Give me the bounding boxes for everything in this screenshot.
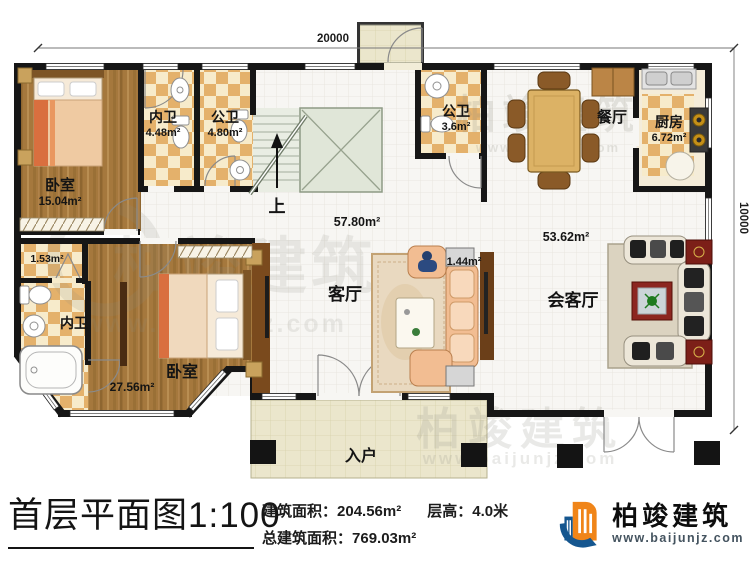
pillow bbox=[70, 82, 96, 96]
kitchen-table bbox=[666, 152, 694, 180]
column bbox=[461, 443, 487, 467]
dining-chair bbox=[582, 134, 599, 162]
side-table bbox=[686, 340, 712, 364]
floor-plan-sheet: 柏竣建筑 www.baijunjz.com 柏竣建筑 www.baijunjz.… bbox=[0, 0, 750, 567]
area-duct: 1.44m² bbox=[447, 256, 482, 268]
title-underline bbox=[8, 547, 254, 549]
area-bedroom-bottom: 27.56m² bbox=[110, 380, 155, 394]
column bbox=[694, 441, 720, 465]
sink bbox=[425, 74, 449, 98]
sink bbox=[171, 78, 189, 102]
label-entry-porch: 入户 bbox=[345, 446, 377, 465]
cushion bbox=[630, 240, 646, 258]
area-reception: 53.62m² bbox=[543, 230, 590, 244]
side-cabinet bbox=[446, 366, 474, 386]
building-area-value: 204.56m² bbox=[337, 503, 401, 520]
window bbox=[305, 64, 355, 70]
cushion bbox=[632, 342, 650, 360]
tv-icon bbox=[484, 272, 488, 334]
cushion bbox=[670, 240, 684, 258]
blanket-stripe bbox=[34, 100, 48, 166]
sofa-cushion bbox=[450, 334, 474, 362]
area-closet: 1.53m² bbox=[30, 253, 64, 265]
dining-chair bbox=[508, 134, 525, 162]
watermark-url: www.baijunjz.com bbox=[422, 449, 618, 468]
headboard bbox=[243, 270, 251, 360]
dresser bbox=[120, 282, 127, 366]
dimension-top: 20000 bbox=[317, 33, 349, 45]
nightstand bbox=[18, 68, 32, 83]
label-bedroom-top: 卧室 bbox=[45, 176, 75, 194]
blanket-stripe bbox=[50, 100, 55, 166]
dining-table bbox=[528, 90, 580, 172]
area-public-bath-mid: 3.6m² bbox=[442, 121, 471, 133]
side-table bbox=[686, 240, 712, 264]
headboard bbox=[32, 70, 104, 78]
bay-window bbox=[70, 411, 174, 417]
brand-logo-icon bbox=[558, 495, 604, 551]
page-title: 首层平面图1:100 bbox=[8, 487, 281, 538]
wardrobe bbox=[178, 246, 252, 258]
area-public-bath-top: 4.80m² bbox=[208, 127, 243, 139]
pillow bbox=[216, 318, 238, 350]
dimension-right: 10000 bbox=[737, 202, 749, 234]
sink-basin bbox=[646, 72, 667, 85]
sink bbox=[23, 315, 45, 337]
stats-row-2: 总建筑面积：769.03m² bbox=[262, 525, 508, 552]
dining-chair bbox=[538, 72, 570, 89]
label-living: 客厅 bbox=[327, 284, 362, 304]
window bbox=[408, 394, 450, 400]
cushion bbox=[650, 240, 666, 258]
toilet bbox=[29, 286, 51, 304]
person-body bbox=[418, 260, 437, 272]
label-public-bath-top: 公卫 bbox=[211, 109, 239, 125]
title-block: 首层平面图1:100 建筑面积：204.56m²层高：4.0米 总建筑面积：76… bbox=[0, 485, 750, 567]
dining-chair bbox=[538, 172, 570, 189]
tv-icon bbox=[265, 276, 269, 338]
blanket-stripe bbox=[159, 274, 169, 358]
reception-door-right bbox=[639, 417, 674, 452]
building-area-label: 建筑面积： bbox=[262, 503, 337, 520]
area-stats: 建筑面积：204.56m²层高：4.0米 总建筑面积：769.03m² bbox=[262, 498, 508, 552]
person bbox=[422, 251, 432, 261]
label-kitchen: 厨房 bbox=[655, 114, 683, 130]
nightstand bbox=[246, 362, 262, 377]
cushion bbox=[656, 342, 674, 360]
window bbox=[46, 64, 104, 70]
window bbox=[494, 64, 580, 70]
floor-height-value: 4.0米 bbox=[472, 503, 508, 520]
window bbox=[202, 64, 248, 70]
brand-name: 柏竣建筑 bbox=[612, 501, 744, 531]
back-porch-floor bbox=[359, 25, 423, 63]
back-door-opening bbox=[384, 63, 422, 70]
coffee-table bbox=[396, 298, 434, 348]
label-public-bath-mid: 公卫 bbox=[442, 103, 470, 119]
toilet-tank bbox=[20, 286, 29, 304]
label-reception: 会客厅 bbox=[548, 290, 599, 310]
sofa-cushion bbox=[450, 270, 474, 298]
brand-website: www.baijunjz.com bbox=[612, 531, 744, 546]
cushion bbox=[684, 292, 704, 312]
wardrobe bbox=[20, 218, 104, 231]
label-bedroom-bottom: 卧室 bbox=[166, 362, 198, 381]
area-living: 57.80m² bbox=[334, 215, 381, 229]
bathtub bbox=[20, 346, 82, 394]
sink-basin bbox=[671, 72, 692, 85]
sink bbox=[230, 160, 250, 180]
column bbox=[250, 440, 276, 464]
cushion bbox=[684, 316, 704, 336]
area-kitchen: 6.72m² bbox=[652, 132, 687, 144]
total-area-value: 769.03m² bbox=[352, 530, 416, 547]
label-dining: 餐厅 bbox=[597, 108, 627, 126]
reception-sofa-set bbox=[608, 236, 712, 368]
cushion bbox=[684, 268, 704, 288]
total-area-label: 总建筑面积： bbox=[262, 530, 352, 547]
brand-block: 柏竣建筑 www.baijunjz.com bbox=[558, 495, 744, 551]
toilet-tank bbox=[421, 116, 430, 132]
label-ensuite-bottom: 内卫 bbox=[60, 315, 88, 331]
window bbox=[143, 64, 178, 70]
area-bedroom-top: 15.04m² bbox=[39, 196, 82, 208]
pillow bbox=[216, 280, 238, 312]
window bbox=[262, 394, 296, 400]
area-ensuite-top: 4.48m² bbox=[146, 127, 181, 139]
label-ensuite-top: 内卫 bbox=[149, 109, 177, 125]
sofa-cushion bbox=[450, 302, 474, 330]
floor-height-label: 层高： bbox=[427, 503, 472, 520]
floor-plan-drawing: 柏竣建筑 www.baijunjz.com 柏竣建筑 www.baijunjz.… bbox=[0, 0, 750, 485]
pillow bbox=[38, 82, 64, 96]
table-decor bbox=[404, 309, 410, 315]
label-stair-up: 上 bbox=[269, 197, 286, 216]
window bbox=[706, 198, 712, 242]
nightstand bbox=[18, 150, 32, 165]
column bbox=[557, 444, 583, 468]
stats-row-1: 建筑面积：204.56m²层高：4.0米 bbox=[262, 498, 508, 525]
table-plant bbox=[412, 328, 420, 336]
dining-chair bbox=[508, 100, 525, 128]
